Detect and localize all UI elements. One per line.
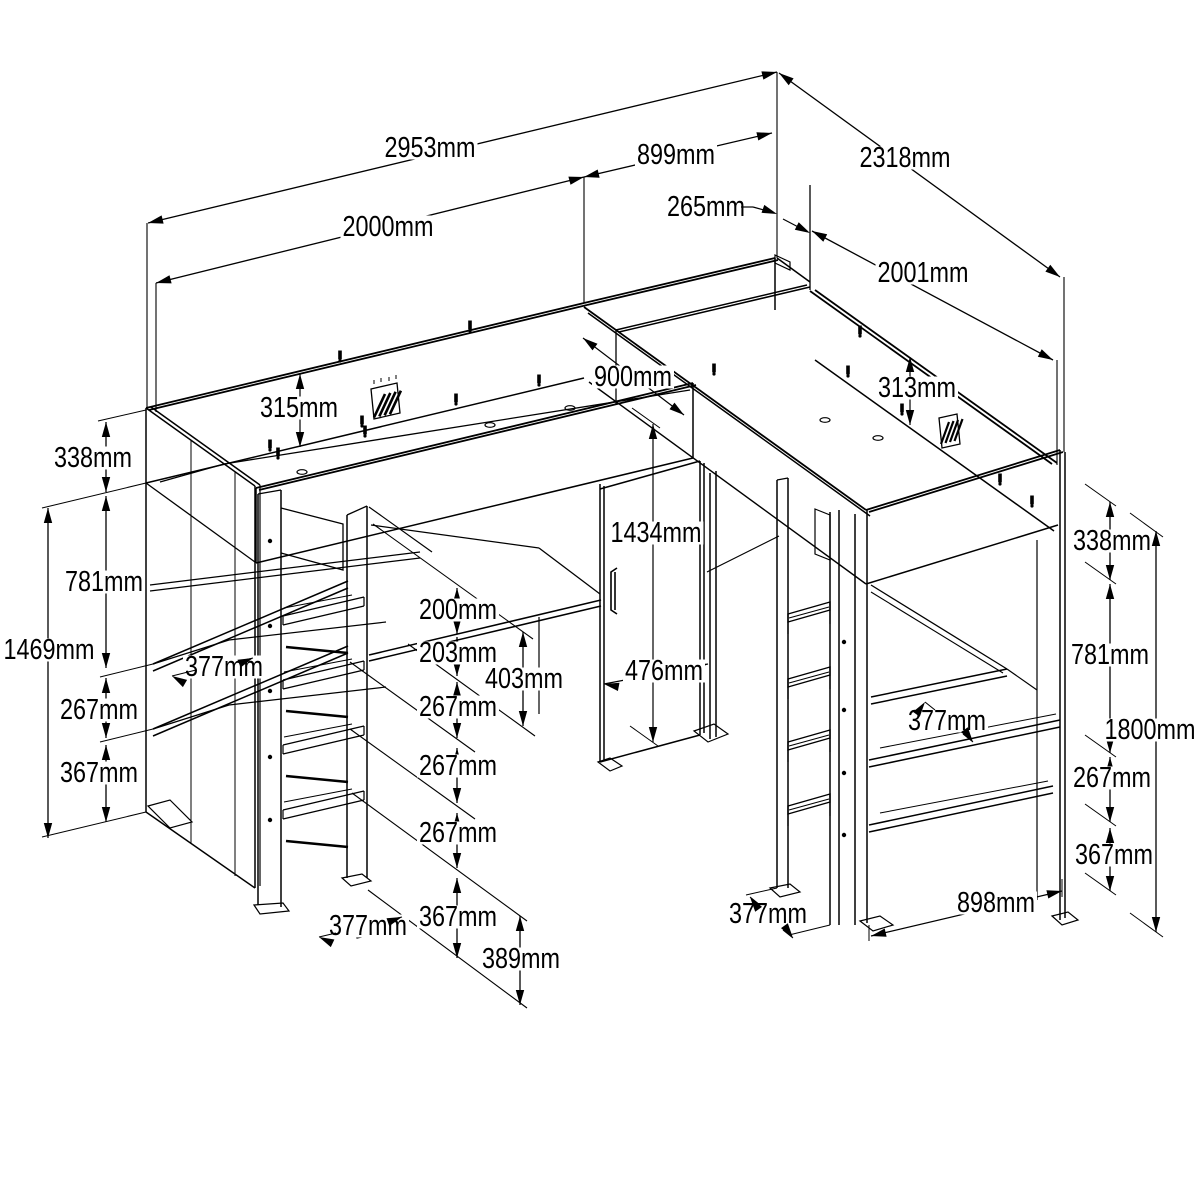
svg-text:377mm: 377mm: [729, 898, 807, 930]
svg-text:1800mm: 1800mm: [1105, 714, 1196, 746]
svg-text:367mm: 367mm: [419, 901, 497, 933]
svg-text:265mm: 265mm: [667, 191, 745, 223]
svg-text:338mm: 338mm: [1073, 525, 1151, 557]
svg-text:898mm: 898mm: [957, 887, 1035, 919]
svg-text:2000mm: 2000mm: [343, 211, 434, 243]
svg-text:2001mm: 2001mm: [878, 257, 969, 289]
svg-text:781mm: 781mm: [65, 566, 143, 598]
svg-text:200mm: 200mm: [419, 594, 497, 626]
svg-text:2953mm: 2953mm: [385, 132, 476, 164]
svg-text:267mm: 267mm: [1073, 762, 1151, 794]
svg-text:315mm: 315mm: [260, 392, 338, 424]
svg-text:899mm: 899mm: [637, 139, 715, 171]
svg-text:367mm: 367mm: [60, 757, 138, 789]
svg-text:267mm: 267mm: [419, 750, 497, 782]
svg-text:377mm: 377mm: [329, 910, 407, 942]
svg-text:476mm: 476mm: [625, 655, 703, 687]
svg-text:367mm: 367mm: [1075, 839, 1153, 871]
svg-text:900mm: 900mm: [594, 361, 672, 393]
svg-text:389mm: 389mm: [482, 943, 560, 975]
svg-text:2318mm: 2318mm: [860, 142, 951, 174]
svg-text:377mm: 377mm: [185, 651, 263, 683]
svg-text:1469mm: 1469mm: [4, 634, 95, 666]
svg-text:338mm: 338mm: [54, 442, 132, 474]
svg-text:267mm: 267mm: [60, 694, 138, 726]
svg-text:267mm: 267mm: [419, 691, 497, 723]
svg-text:1434mm: 1434mm: [611, 517, 702, 549]
svg-text:267mm: 267mm: [419, 817, 497, 849]
svg-text:781mm: 781mm: [1071, 639, 1149, 671]
svg-text:313mm: 313mm: [878, 372, 956, 404]
